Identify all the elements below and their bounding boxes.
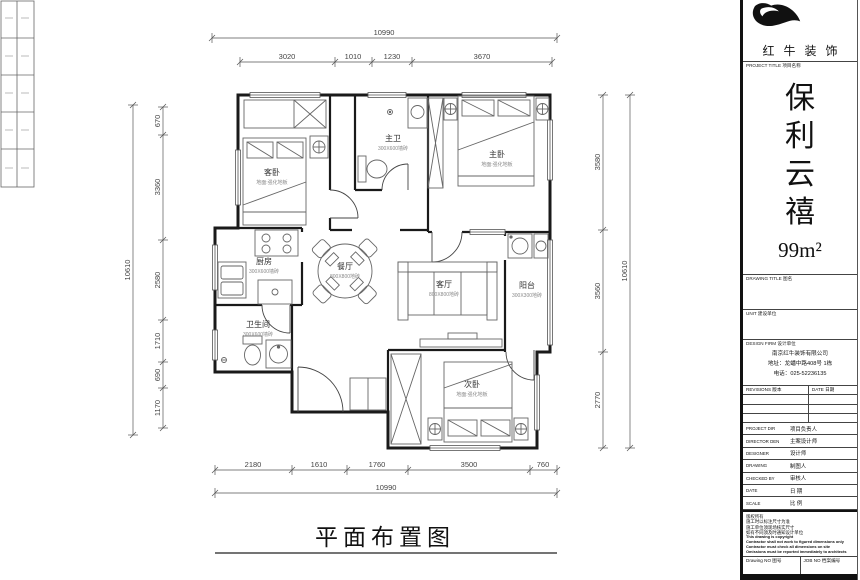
svg-text:760: 760: [537, 460, 550, 469]
design-firm-label: DESIGN FIRM 设计单位: [746, 341, 796, 346]
project-name: 保 利 云 禧 99m²: [743, 74, 857, 274]
svg-text:690: 690: [153, 369, 162, 382]
redbull-logo-icon: [743, 0, 807, 34]
personnel-en: DRAWING: [746, 463, 790, 468]
svg-text:次卧: 次卧: [464, 379, 480, 389]
title-block: 红牛装饰 PROJECT TITLE 项目名称 保 利 云 禧 99m² DRA…: [740, 0, 858, 580]
dimensions: [128, 33, 635, 498]
room-label-master-bedroom: 主卧 地面:强化地板: [481, 149, 512, 168]
personnel-cn: 主案设计师: [790, 437, 817, 445]
guest-bed: [243, 100, 328, 225]
svg-text:300X300地砖: 300X300地砖: [512, 292, 542, 299]
personnel-en: SCALE: [746, 501, 790, 506]
svg-text:主卫: 主卫: [385, 133, 401, 143]
svg-text:800X800地砖: 800X800地砖: [330, 273, 360, 280]
second-bed: [391, 354, 528, 444]
personnel-cn: 比 例: [790, 499, 802, 507]
svg-text:地面:强化地板: 地面:强化地板: [256, 179, 287, 186]
room-label-living: 客厅 800X800地砖: [429, 279, 459, 298]
svg-text:客厅: 客厅: [436, 279, 452, 289]
svg-text:地面:强化地板: 地面:强化地板: [481, 161, 512, 168]
dining-table: [290, 216, 400, 326]
svg-text:客卧: 客卧: [264, 167, 280, 177]
balcony-fixtures: [508, 234, 548, 258]
project-name-char: 云: [785, 156, 815, 194]
bathroom-fixtures: [222, 336, 292, 368]
personnel-row: DIRECTOR DEN 主案设计师: [743, 435, 857, 447]
svg-text:1170: 1170: [153, 400, 162, 416]
personnel-cn: 日 期: [790, 487, 802, 495]
svg-text:3580: 3580: [593, 154, 602, 171]
notes-block: 版权所有 施工时以标注尺寸为准 施工单位须现场核实尺寸 如有不同须及时通知设计单…: [743, 510, 857, 557]
firm-name: 南京红牛装饰有限公司: [746, 349, 854, 357]
design-firm-section: DESIGN FIRM 设计单位 南京红牛装饰有限公司 地址：龙蟠中路408号 …: [743, 340, 857, 386]
personnel-en: PROJECT DIR: [746, 426, 790, 431]
personnel-row: SCALE 比 例: [743, 497, 857, 509]
floor-plan-svg: 客卧 地面:强化地板 主卫 300X600墙砖 主卧 地面:强化地板 厨房 30…: [0, 0, 740, 580]
svg-text:卫生间: 卫生间: [246, 319, 270, 329]
floor-plan-sheet: 客卧 地面:强化地板 主卫 300X600墙砖 主卧 地面:强化地板 厨房 30…: [0, 0, 860, 580]
svg-text:2180: 2180: [245, 460, 262, 469]
personnel-row: CHECKED BY 审核人: [743, 473, 857, 485]
room-label-master-bath: 主卫 300X600墙砖: [378, 133, 408, 152]
sheet-title: 平面布置图: [215, 525, 557, 553]
svg-text:800X800地砖: 800X800地砖: [429, 291, 459, 298]
svg-text:3670: 3670: [474, 52, 491, 61]
room-label-balcony: 阳台 300X300地砖: [512, 280, 542, 299]
project-name-char: 禧: [785, 194, 815, 232]
svg-text:10990: 10990: [376, 483, 397, 492]
svg-text:10990: 10990: [374, 28, 395, 37]
project-name-char: 利: [785, 118, 815, 156]
drawing-number-row: Drawing NO 图号 JOB NO 档案编号: [743, 557, 857, 574]
firm-address: 地址：龙蟠中路408号 1栋: [746, 359, 854, 367]
date-label: DATE 日期: [808, 386, 857, 394]
revisions-table: REVISIONS 版本 DATE 日期: [743, 386, 857, 423]
brand-name: 红牛装饰: [753, 42, 846, 59]
personnel-cn: 项目负责人: [790, 425, 817, 433]
svg-text:1230: 1230: [384, 52, 401, 61]
room-label-bathroom: 卫生间 300X600墙砖: [243, 319, 273, 338]
tv-stand: [420, 333, 502, 347]
svg-text:1760: 1760: [369, 460, 386, 469]
svg-text:平面布置图: 平面布置图: [315, 525, 455, 550]
sofa: [398, 262, 497, 320]
room-label-guest-bedroom: 客卧 地面:强化地板: [256, 167, 287, 186]
svg-text:阳台: 阳台: [519, 280, 535, 290]
personnel-en: DESIGNER: [746, 451, 790, 456]
drawing-no-label: Drawing NO 图号: [743, 557, 801, 574]
svg-text:3500: 3500: [461, 460, 478, 469]
personnel-cn: 制图人: [790, 462, 806, 470]
svg-text:3560: 3560: [593, 283, 602, 300]
brand-header: 红牛装饰: [743, 0, 857, 62]
svg-text:3360: 3360: [153, 179, 162, 196]
svg-text:300X600墙砖: 300X600墙砖: [378, 145, 408, 152]
entry-cabinet: [350, 378, 386, 410]
personnel-en: DATE: [746, 488, 790, 493]
svg-text:300X600墙砖: 300X600墙砖: [243, 331, 273, 338]
personnel-row: DRAWING 制图人: [743, 460, 857, 472]
svg-text:餐厅: 餐厅: [337, 262, 353, 271]
master-bed: [428, 96, 549, 188]
svg-text:1010: 1010: [345, 52, 362, 61]
room-label-dining: 餐厅 800X800地砖: [330, 262, 360, 280]
bottom-bar: [743, 574, 857, 580]
project-area: 99m²: [778, 238, 822, 263]
personnel-en: CHECKED BY: [746, 476, 790, 481]
svg-text:厨房: 厨房: [256, 256, 272, 266]
project-title-label: PROJECT TITLE 项目名称: [746, 63, 801, 68]
personnel-row: PROJECT DIR 项目负责人: [743, 423, 857, 435]
personnel-en: DIRECTOR DEN: [746, 439, 790, 444]
svg-text:300X600墙砖: 300X600墙砖: [249, 268, 279, 275]
room-label-kitchen: 厨房 300X600墙砖: [249, 256, 279, 275]
svg-text:10610: 10610: [123, 260, 132, 281]
svg-text:1610: 1610: [311, 460, 328, 469]
revisions-label: REVISIONS 版本: [743, 386, 808, 394]
svg-text:670: 670: [153, 115, 162, 128]
unit-label: UNIT 建设单位: [746, 311, 776, 316]
kitchen-fixtures: [218, 230, 298, 304]
firm-phone: 电话：025-52236135: [746, 369, 854, 377]
svg-text:地面:强化地板: 地面:强化地板: [456, 391, 487, 398]
personnel-cn: 审核人: [790, 474, 806, 482]
project-name-char: 保: [785, 80, 815, 118]
svg-text:3020: 3020: [279, 52, 296, 61]
svg-text:2770: 2770: [593, 392, 602, 409]
personnel-row: DATE 日 期: [743, 485, 857, 497]
interior-walls: [215, 95, 550, 412]
svg-text:1710: 1710: [153, 333, 162, 350]
note-line: Omissions must be reported immediately t…: [746, 550, 854, 555]
svg-text:主卧: 主卧: [489, 149, 505, 159]
drawing-title-label: DRAWING TITLE 图名: [746, 276, 792, 281]
personnel-cn: 设计师: [790, 449, 806, 457]
svg-text:10610: 10610: [620, 261, 629, 282]
personnel-row: DESIGNER 设计师: [743, 448, 857, 460]
job-no-label: JOB NO 档案编号: [801, 557, 858, 574]
signature-strip: [1, 1, 34, 187]
svg-text:2580: 2580: [153, 272, 162, 289]
